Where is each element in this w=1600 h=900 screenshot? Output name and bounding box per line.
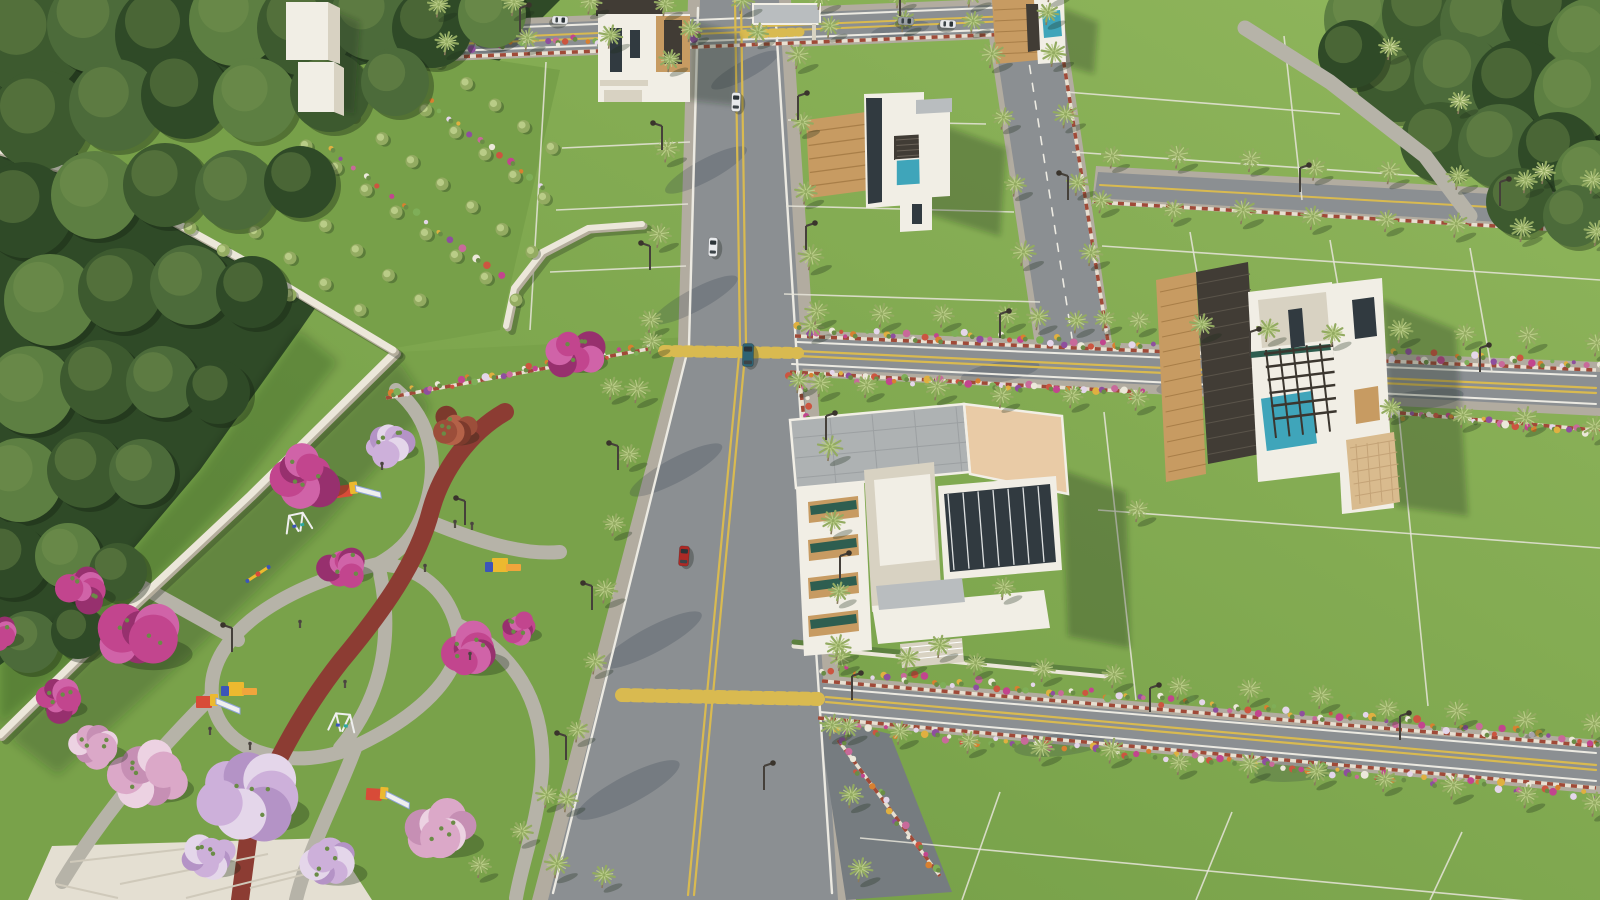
flower-cluster (586, 39, 591, 44)
flowering-tree (545, 331, 608, 377)
flower-cluster (1128, 341, 1135, 348)
flower-cluster (1577, 739, 1582, 744)
flower-cluster (447, 236, 454, 243)
flower-cluster (827, 668, 834, 675)
flower-cluster (1163, 757, 1169, 763)
flower-cluster (1587, 740, 1593, 746)
flower-cluster (1555, 785, 1560, 790)
flower-cluster (338, 157, 342, 161)
flower-cluster (1282, 707, 1289, 714)
flower-cluster (1104, 695, 1112, 703)
flower-cluster (839, 371, 843, 375)
flower-cluster (1476, 723, 1483, 730)
flower-cluster (1216, 755, 1223, 762)
flower-cluster (975, 378, 980, 383)
flower-cluster (1115, 341, 1121, 347)
flower-cluster (1021, 737, 1029, 745)
flower-cluster (950, 683, 955, 688)
flower-cluster (892, 379, 897, 384)
flower-cluster (1007, 337, 1012, 342)
flower-cluster (845, 748, 852, 755)
flower-cluster (805, 403, 812, 410)
flower-cluster (874, 328, 880, 334)
flower-cluster (1133, 751, 1139, 757)
flower-cluster (1550, 359, 1554, 363)
flower-cluster (1089, 688, 1094, 693)
flower-cluster (1088, 343, 1094, 349)
flower-cluster (1051, 691, 1056, 696)
flower-cluster (940, 682, 946, 688)
flower-cluster (1151, 342, 1156, 347)
flower-cluster (1335, 768, 1339, 772)
flower-cluster (1336, 713, 1344, 721)
flower-cluster (1213, 707, 1219, 713)
flower-cluster (1355, 775, 1359, 779)
flower-cluster (1074, 743, 1080, 749)
flower-cluster (925, 862, 932, 869)
flower-cluster (471, 379, 478, 386)
flower-cluster (987, 337, 992, 342)
flower-cluster (1280, 765, 1285, 770)
flower-cluster (910, 382, 915, 387)
flower-cluster (1329, 772, 1336, 779)
flower-cluster (1436, 726, 1441, 731)
flower-cluster (501, 373, 507, 379)
flower-cluster (1141, 695, 1146, 700)
flower-cluster (413, 208, 421, 216)
flower-cluster (1192, 752, 1199, 759)
flower-cluster (498, 272, 505, 279)
flower-cluster (884, 725, 888, 729)
flower-cluster (1146, 749, 1151, 754)
flower-cluster (993, 736, 998, 741)
flower-cluster (923, 852, 928, 857)
flower-cluster (1036, 336, 1044, 344)
flower-cluster (1121, 387, 1128, 394)
flower-cluster (865, 329, 869, 333)
flower-cluster (1581, 789, 1586, 794)
flower-cluster (830, 370, 835, 375)
flower-cluster (993, 685, 1000, 692)
flower-cluster (1168, 695, 1175, 702)
flower-cluster (1082, 690, 1088, 696)
flower-cluster (1413, 715, 1421, 723)
flower-cluster (1572, 360, 1576, 364)
flower-cluster (1003, 687, 1011, 695)
scene-viewport (0, 0, 1600, 900)
flower-cluster (496, 152, 503, 159)
flower-cluster (1361, 771, 1369, 779)
flower-cluster (437, 109, 442, 114)
flower-cluster (903, 330, 911, 338)
flower-cluster (1492, 732, 1497, 737)
flower-cluster (947, 734, 951, 738)
flower-cluster (450, 385, 454, 389)
flower-cluster (1058, 690, 1064, 696)
flower-cluster (869, 783, 875, 789)
flower-cluster (1584, 362, 1590, 368)
flower-cluster (1497, 778, 1505, 786)
flower-cluster (1495, 785, 1503, 793)
flower-cluster (489, 144, 495, 150)
flower-cluster (562, 38, 568, 44)
flower-cluster (1498, 725, 1505, 732)
flower-cluster (1269, 762, 1274, 767)
flower-cluster (483, 261, 490, 268)
flower-cluster (1115, 692, 1122, 699)
flower-cluster (634, 351, 639, 356)
flower-cluster (424, 220, 428, 224)
flower-cluster (1558, 735, 1565, 742)
flower-cluster (1047, 340, 1054, 347)
flower-cluster (351, 166, 356, 171)
flower-cluster (482, 373, 490, 381)
flower-cluster (1031, 683, 1035, 687)
flower-cluster (973, 685, 979, 691)
crosswalk-marking (664, 351, 798, 353)
flower-cluster (1351, 712, 1356, 717)
flower-cluster (1464, 360, 1469, 365)
flower-cluster (964, 380, 972, 388)
flower-cluster (1023, 687, 1029, 693)
flower-cluster (864, 724, 871, 731)
flower-cluster (393, 388, 401, 396)
flower-cluster (458, 376, 465, 383)
flower-cluster (1501, 421, 1509, 429)
flower-cluster (1158, 702, 1164, 708)
flower-cluster (850, 756, 856, 762)
flower-cluster (1471, 351, 1479, 359)
flower-cluster (884, 674, 891, 681)
flower-cluster (1199, 699, 1205, 705)
flower-cluster (1031, 383, 1038, 390)
flower-cluster (1298, 767, 1304, 773)
crosswalk-marking (622, 695, 818, 699)
flower-cluster (1197, 756, 1204, 763)
flower-cluster (1467, 777, 1474, 784)
flower-cluster (1111, 385, 1118, 392)
flower-cluster (1486, 416, 1493, 423)
flower-cluster (1566, 427, 1572, 433)
flower-cluster (914, 727, 919, 732)
flower-cluster (545, 38, 551, 44)
flower-cluster (1421, 774, 1427, 780)
flower-cluster (466, 131, 472, 137)
flower-cluster (870, 675, 874, 679)
flower-cluster (839, 330, 843, 334)
flower-cluster (883, 797, 889, 803)
flower-cluster (405, 392, 409, 396)
flower-cluster (1255, 710, 1262, 717)
flower-cluster (526, 174, 533, 181)
flower-cluster (1570, 793, 1577, 800)
flower-cluster (1363, 712, 1369, 718)
flower-cluster (1053, 386, 1060, 393)
flower-cluster (1554, 426, 1561, 433)
flower-cluster (427, 386, 432, 391)
aerial-site-render (0, 0, 1600, 900)
flower-cluster (456, 121, 460, 125)
flower-cluster (921, 730, 929, 738)
flower-cluster (976, 336, 983, 343)
flower-cluster (952, 379, 956, 383)
flower-cluster (1517, 354, 1524, 361)
flower-cluster (902, 821, 910, 829)
flower-cluster (886, 808, 893, 815)
flower-cluster (556, 42, 560, 46)
flower-cluster (891, 334, 896, 339)
flower-cluster (1482, 417, 1486, 421)
flower-cluster (922, 334, 929, 341)
flower-cluster (921, 672, 929, 680)
flower-cluster (906, 835, 910, 839)
flower-cluster (1490, 358, 1496, 364)
flower-cluster (1004, 739, 1008, 743)
flower-cluster (843, 334, 847, 338)
flower-cluster (1560, 363, 1565, 368)
flower-cluster (861, 774, 865, 778)
flower-cluster (374, 183, 379, 188)
flower-cluster (506, 371, 512, 377)
flower-cluster (1061, 746, 1067, 752)
flower-cluster (1092, 387, 1100, 395)
flower-cluster (1443, 727, 1450, 734)
flower-cluster (1061, 342, 1067, 348)
flower-cluster (1100, 339, 1106, 345)
flower-cluster (1272, 704, 1276, 708)
flower-cluster (1528, 359, 1536, 367)
flower-cluster (1227, 708, 1232, 713)
flower-cluster (961, 329, 968, 336)
flower-cluster (1418, 722, 1425, 729)
flower-cluster (1433, 778, 1437, 782)
flower-cluster (617, 347, 621, 351)
flower-cluster (1546, 733, 1551, 738)
flower-cluster (525, 363, 531, 369)
flower-cluster (1244, 706, 1251, 713)
flower-cluster (1312, 716, 1317, 721)
flower-cluster (1299, 711, 1305, 717)
flower-cluster (809, 373, 814, 378)
flower-cluster (389, 194, 394, 199)
flower-cluster (1499, 361, 1505, 367)
flower-cluster (1407, 771, 1413, 777)
flower-cluster (532, 366, 538, 372)
flower-cluster (1070, 338, 1078, 346)
